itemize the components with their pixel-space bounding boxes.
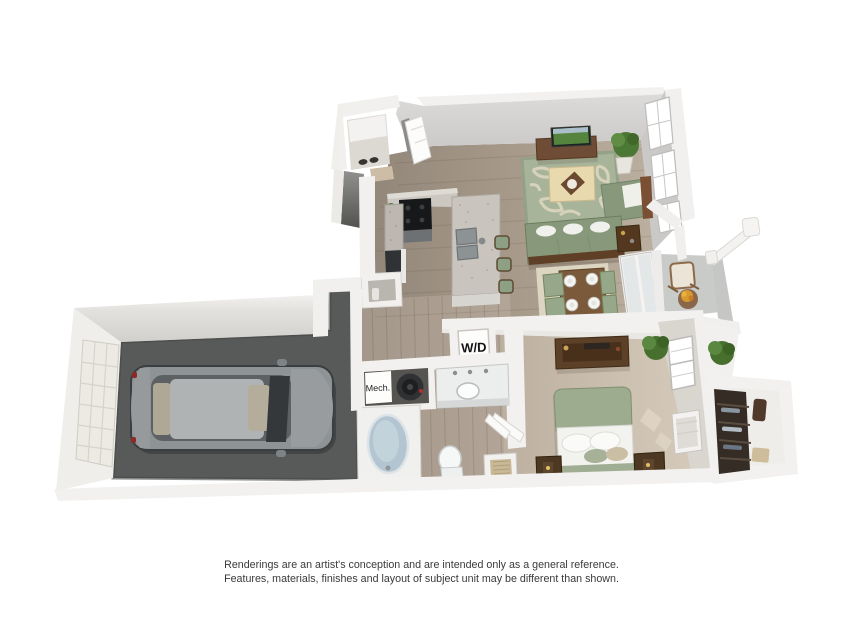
svg-text:W/D: W/D <box>461 340 487 356</box>
svg-text:Mech.: Mech. <box>365 383 390 394</box>
